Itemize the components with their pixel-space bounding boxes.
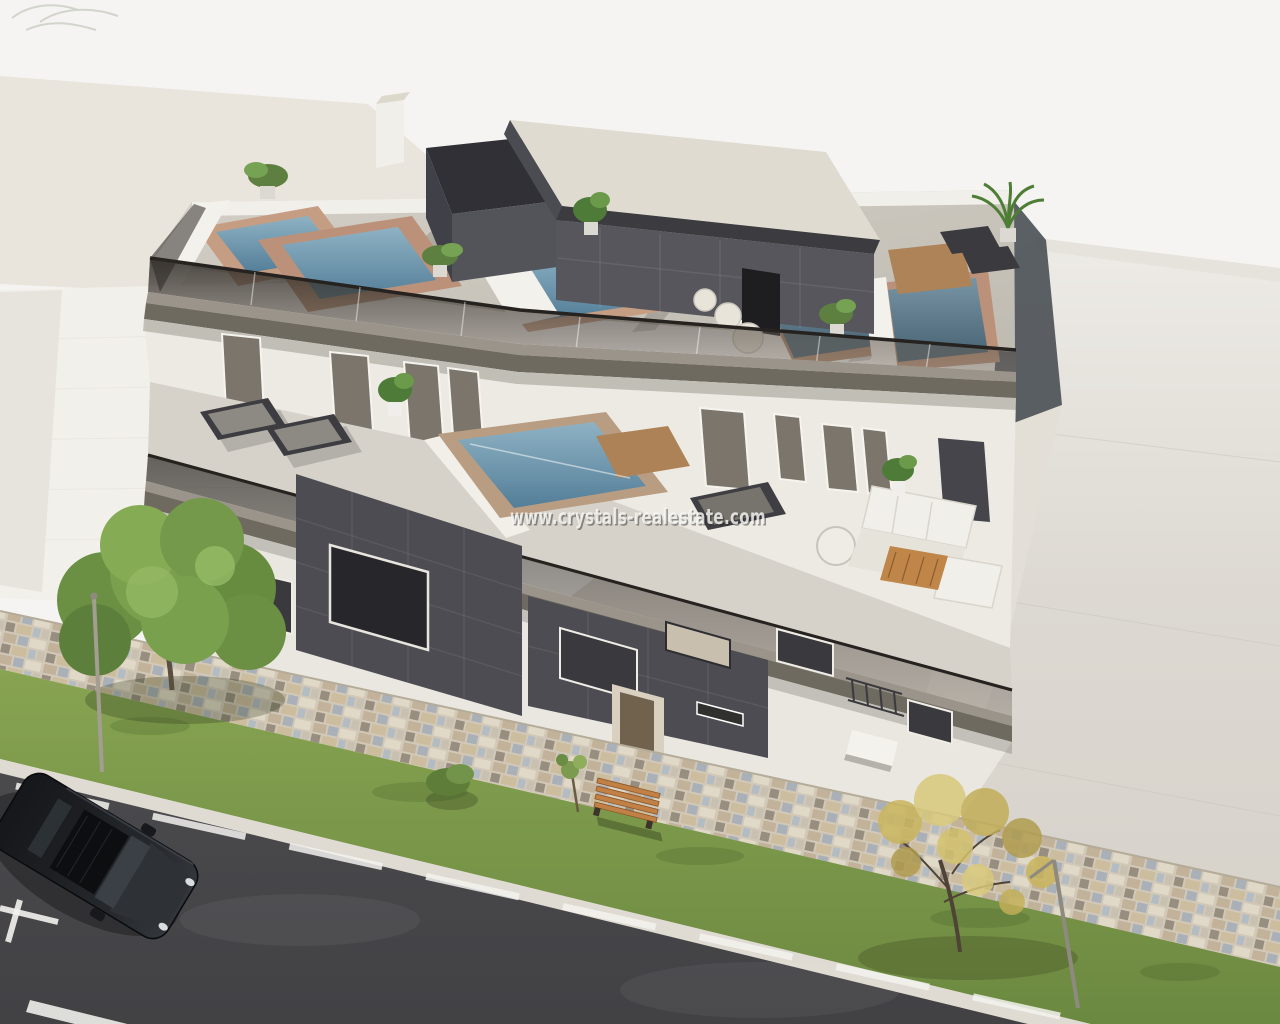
render-canvas: www.crystals-realestate.com www.crystals…	[0, 0, 1280, 1024]
watermark-text: www.crystals-realestate.com	[510, 505, 766, 530]
round-chair	[817, 527, 855, 565]
architectural-render: www.crystals-realestate.com www.crystals…	[0, 0, 1280, 1024]
